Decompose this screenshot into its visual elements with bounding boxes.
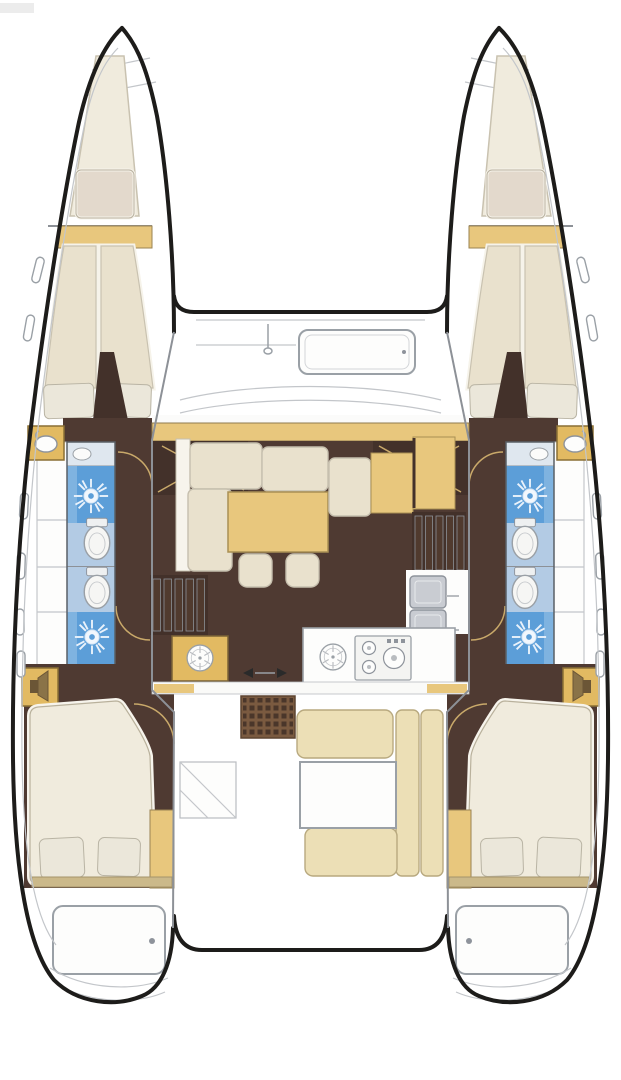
stbd-vanity — [557, 426, 593, 460]
transom-beam — [32, 877, 172, 887]
foredeck — [174, 296, 447, 413]
deck-hatch-icon — [299, 330, 415, 374]
pillow — [97, 837, 140, 876]
shower-rose-icon — [74, 479, 108, 513]
settee-cushion — [190, 443, 262, 489]
stbd-vberth — [468, 246, 578, 430]
port-bathrooms — [67, 442, 115, 665]
toilet-icon — [84, 567, 110, 608]
mast-step-icon — [264, 324, 272, 354]
saloon — [150, 415, 469, 694]
toilet-icon — [512, 518, 538, 559]
round-sink-icon — [320, 644, 346, 670]
stbd-bathrooms — [506, 442, 554, 665]
port-forward-berth — [70, 56, 139, 218]
front-deck-strip — [152, 415, 469, 423]
pillow — [39, 837, 85, 879]
footstool — [286, 554, 319, 587]
toilet-icon — [512, 567, 538, 608]
galley-cabinet — [172, 636, 228, 681]
forward-crossbeam — [174, 296, 447, 312]
settee-cushion — [262, 447, 328, 491]
pillow — [480, 837, 523, 876]
pillow — [526, 383, 577, 419]
cockpit-table — [300, 762, 396, 828]
round-sink-icon — [187, 645, 213, 671]
port-wardrobe — [150, 810, 174, 888]
toilet-icon — [84, 518, 110, 559]
stbd-aft-cabin — [447, 664, 599, 888]
port-counter — [37, 442, 67, 665]
settee-cushion — [188, 489, 232, 571]
footstool — [239, 554, 272, 587]
cockpit — [174, 696, 447, 950]
pillow — [43, 383, 94, 419]
nav-panel — [413, 437, 455, 509]
cockpit-side-locker — [180, 762, 236, 818]
shower-rose-icon — [75, 620, 109, 654]
steps-to-stbd-hull — [412, 512, 466, 574]
port-corridor — [115, 418, 152, 692]
stbd-wardrobe — [447, 810, 471, 888]
aft-crossbeam — [174, 916, 447, 950]
coachroof-line — [180, 400, 441, 413]
pillow — [487, 170, 545, 218]
stove-burners-icon — [355, 636, 411, 680]
shower-rose-icon — [512, 620, 546, 654]
port-hull — [16, 56, 174, 1000]
coachroof-line — [180, 387, 441, 401]
port-aft-cabin — [22, 664, 174, 888]
scan-artifact — [0, 3, 34, 13]
nav-seat — [329, 458, 371, 516]
transom-hatch-icon — [53, 906, 165, 974]
port-vanity — [28, 426, 64, 460]
catamaran-floorplan — [0, 0, 621, 1080]
pillow — [536, 837, 582, 879]
cockpit-grate-table — [241, 696, 295, 738]
stbd-counter — [554, 442, 584, 665]
transom-hatch-icon — [456, 906, 568, 974]
stbd-forward-berth — [482, 56, 551, 218]
saloon-aft-wall — [152, 682, 469, 694]
steps-to-port-hull — [150, 575, 208, 635]
pillow — [76, 170, 134, 218]
port-vberth — [43, 246, 153, 430]
shower-rose-icon — [513, 479, 547, 513]
saloon-table — [228, 492, 328, 552]
transom-beam — [449, 877, 589, 887]
starboard-hull — [447, 56, 605, 1000]
stbd-corridor — [469, 418, 506, 692]
nav-desk — [371, 453, 413, 513]
